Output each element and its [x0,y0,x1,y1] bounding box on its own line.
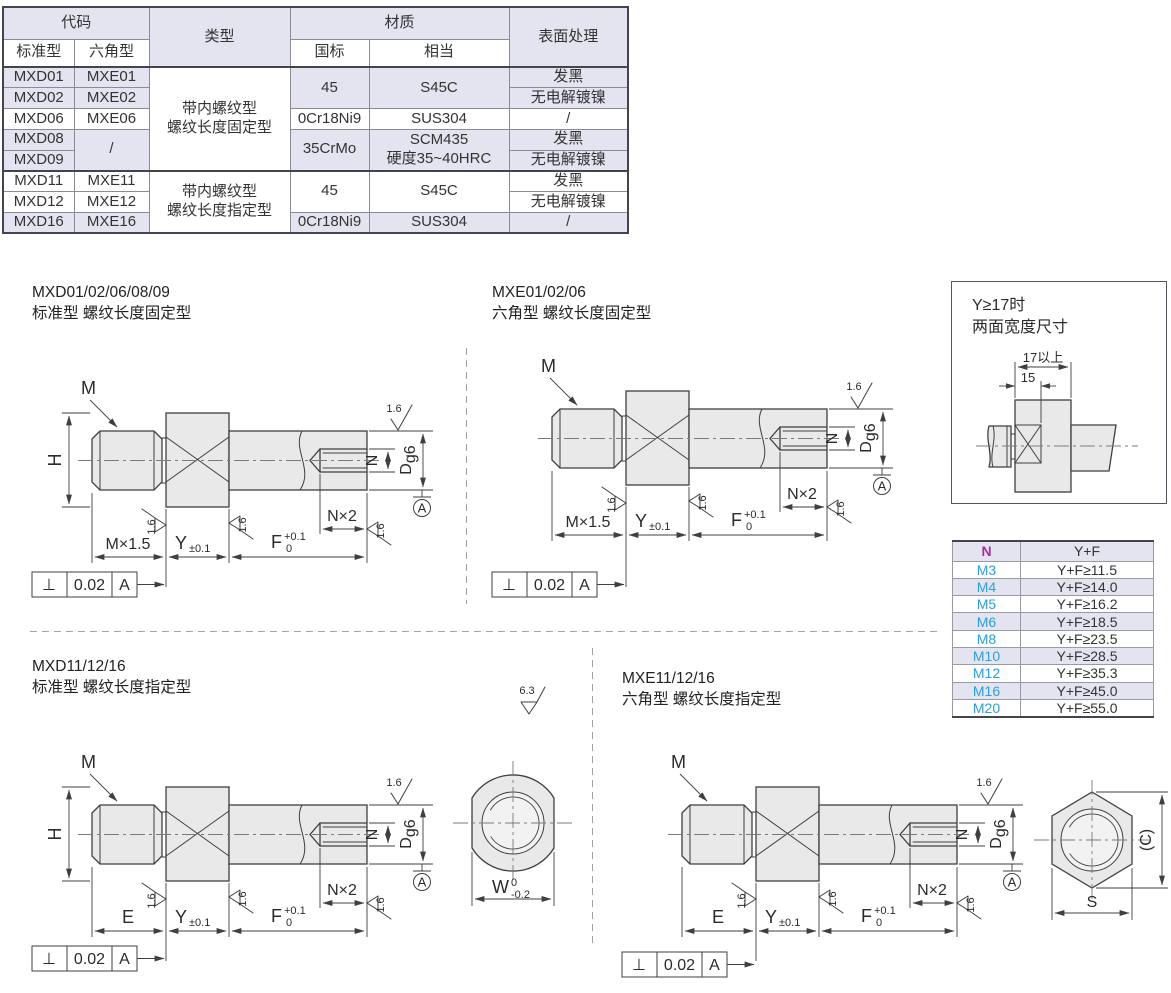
spec-cell: MXE01 [74,67,149,88]
tolerance-frame: ⊥ 0.02 A [32,946,164,971]
svg-text:1.6: 1.6 [846,381,861,393]
shaft-side-view [668,787,972,881]
spec-cell: MXD06 [3,109,74,130]
dim-15: 15 [1021,370,1035,385]
ntable-cell: Y+F≥18.5 [1021,613,1154,630]
header-surface: 表面处理 [509,7,628,67]
dim-over17: 17以上 [1023,350,1063,365]
svg-text:1.6: 1.6 [375,523,387,538]
svg-text:0.02: 0.02 [534,577,565,594]
f-label: F [271,532,282,552]
svg-text:N×2: N×2 [327,882,357,899]
svg-text:1.6: 1.6 [386,777,401,789]
drawing-mxd-specified: MXD11/12/16标准型 螺纹长度指定型 [20,652,470,992]
svg-text:1.6: 1.6 [237,517,249,532]
svg-text:A: A [709,957,720,974]
svg-text:A: A [1008,875,1017,890]
svg-text:⊥: ⊥ [42,951,56,968]
c-label: (C) [1138,829,1155,851]
svg-text:M: M [541,356,556,376]
svg-text:M×1.5: M×1.5 [566,514,611,531]
svg-text:N: N [364,829,381,841]
tol-datum: A [119,577,130,594]
header-material: 材质 [290,7,509,39]
spec-cell: S45C [369,67,509,109]
svg-text:Y: Y [765,907,777,927]
spec-cell-type: 带内螺纹型 螺纹长度指定型 [149,171,290,233]
ntable-cell: Y+F≥16.2 [1021,596,1154,613]
svg-text:+0.1: +0.1 [744,509,766,521]
ntable-header-n: N [953,541,1021,561]
f-sub: 0 [286,543,292,555]
datum-label: A [418,501,427,516]
svg-text:A: A [579,577,590,594]
spec-cell: MXD11 [3,171,74,192]
tap-size-label: N [364,455,381,467]
svg-text:F: F [271,906,282,926]
shaft-side-view [78,787,382,881]
svg-text:1.6: 1.6 [146,893,158,908]
svg-text:+0.1: +0.1 [874,905,896,917]
spec-cell: / [509,109,628,130]
svg-text:⊥: ⊥ [632,957,646,974]
spec-cell: MXD16 [3,212,74,233]
svg-text:M: M [671,752,686,772]
svg-text:Y: Y [175,907,187,927]
ntable-cell: Y+F≥14.0 [1021,578,1154,595]
svg-text:Dg6: Dg6 [858,423,879,452]
w-sup: 0 [511,877,517,889]
svg-text:N: N [824,433,841,445]
svg-text:E: E [712,907,724,927]
svg-text:1.6: 1.6 [965,897,977,912]
svg-text:F: F [731,510,742,530]
svg-text:0: 0 [876,917,882,929]
svg-text:±0.1: ±0.1 [189,917,210,929]
drawing-mxd-fixed: MXD01/02/06/08/09标准型 螺纹长度固定型 [20,278,470,613]
spec-cell-type: 带内螺纹型 螺纹长度固定型 [149,67,290,171]
round-face [453,761,573,885]
header-standard: 标准型 [3,39,74,67]
svg-text:0: 0 [286,917,292,929]
spec-cell: MXE12 [74,192,149,213]
spec-cell: 无电解镀镍 [509,88,628,109]
svg-text:1.6: 1.6 [375,897,387,912]
spec-cell: MXE16 [74,212,149,233]
svg-text:1.6: 1.6 [827,891,839,906]
note-line2: 两面宽度尺寸 [972,318,1068,336]
spec-cell: 35CrMo [290,129,369,171]
svg-text:Dg6: Dg6 [988,819,1009,848]
svg-text:Dg6: Dg6 [398,819,419,848]
spec-cell: SCM435 硬度35~40HRC [369,129,509,171]
svg-text:0.02: 0.02 [664,957,695,974]
spec-cell: MXD02 [3,88,74,109]
spec-cell: MXD09 [3,150,74,171]
svg-text:N×2: N×2 [787,486,817,503]
spec-cell: MXE02 [74,88,149,109]
header-equiv: 相当 [369,39,509,67]
svg-text:1.6: 1.6 [697,495,709,510]
f-sup: +0.1 [284,531,306,543]
spec-cell: SUS304 [369,109,509,130]
tolerance-frame: ⊥ 0.02 A [32,572,164,597]
spec-cell: SUS304 [369,212,509,233]
svg-text:1.6: 1.6 [736,893,748,908]
hex-face [1034,780,1150,900]
y-label: Y [175,533,187,553]
drawing-mxe-fixed: MXE01/02/06六角型 螺纹长度固定型 [480,278,930,613]
w-sub: -0.2 [511,889,530,901]
spec-cell: 45 [290,171,369,213]
s-label: S [1087,894,1098,911]
header-type: 类型 [149,7,290,67]
spec-table: 代码 类型 材质 表面处理 标准型 六角型 国标 相当 MXD01 MXE01 … [2,6,629,234]
header-code: 代码 [3,7,149,39]
ntable-cell: M3 [953,561,1021,578]
front-view-hex: (C) S [1020,740,1171,955]
finish-coarse-value: 6.3 [519,685,534,697]
ntable-cell: M8 [953,630,1021,647]
spec-cell: MXE11 [74,171,149,192]
svg-text:±0.1: ±0.1 [649,521,670,533]
perp-symbol: ⊥ [42,577,56,594]
thread-label: M [81,378,96,398]
y-tol: ±0.1 [189,543,210,555]
catalog-page: 代码 类型 材质 表面处理 标准型 六角型 国标 相当 MXD01 MXE01 … [0,0,1171,993]
spec-cell: 发黑 [509,67,628,88]
spec-cell: MXE06 [74,109,149,130]
spec-cell: / [509,212,628,233]
spec-cell: MXD01 [3,67,74,88]
svg-text:A: A [418,875,427,890]
header-gb: 国标 [290,39,369,67]
svg-text:0: 0 [746,521,752,533]
spec-cell: 45 [290,67,369,109]
spec-cell: MXD08 [3,129,74,150]
divider-horizontal [30,631,940,632]
shaft-side-view [538,391,842,485]
svg-text:A: A [119,951,130,968]
svg-text:⊥: ⊥ [502,577,516,594]
svg-text:1.6: 1.6 [146,519,158,534]
svg-text:E: E [122,907,134,927]
svg-text:0.02: 0.02 [74,951,105,968]
svg-text:A: A [878,479,887,494]
width-note-box: Y≥17时 两面宽度尺寸 17以上 [951,281,1167,504]
w-label: W [492,877,509,897]
svg-text:1.6: 1.6 [976,777,991,789]
spec-cell: 0Cr18Ni9 [290,109,369,130]
note-line1: Y≥17时 [972,296,1025,314]
svg-text:N: N [954,829,971,841]
spec-cell: 发黑 [509,129,628,150]
shaft-side-view [78,413,382,507]
dimensions: M Dg6 N A N×2 [541,356,893,587]
ntable-cell: Y+F≥11.5 [1021,561,1154,578]
spec-cell: / [74,129,149,171]
spec-cell: 无电解镀镍 [509,192,628,213]
ntable-cell: M4 [953,578,1021,595]
drawing-mxe-specified: MXE11/12/16六角型 螺纹长度指定型 [610,652,1060,992]
front-view-round: 6.3 W 0 -0.2 [445,658,595,958]
ntable-cell: M5 [953,596,1021,613]
height-label: H [45,454,65,467]
ntable-cell: M6 [953,613,1021,630]
tap-depth-label: N×2 [327,508,357,525]
spec-cell: 发黑 [509,171,628,192]
svg-text:1.6: 1.6 [237,891,249,906]
svg-text:M: M [81,752,96,772]
tol-value: 0.02 [74,577,105,594]
spec-cell: 无电解镀镍 [509,150,628,171]
mini-drawing: 17以上 15 [976,350,1138,492]
header-hex: 六角型 [74,39,149,67]
first-dim-label: M×1.5 [106,536,151,553]
ntable-header-yf: Y+F [1021,541,1154,561]
spec-cell: 0Cr18Ni9 [290,212,369,233]
shaft-dia-label: Dg6 [398,445,419,474]
svg-text:N×2: N×2 [917,882,947,899]
svg-text:F: F [861,906,872,926]
spec-cell: MXD12 [3,192,74,213]
svg-text:1.6: 1.6 [835,501,847,516]
tolerance-frame: ⊥ 0.02 A [622,952,754,977]
svg-text:±0.1: ±0.1 [779,917,800,929]
tolerance-frame: ⊥ 0.02 A [492,572,624,597]
svg-text:+0.1: +0.1 [284,905,306,917]
svg-text:H: H [45,828,65,841]
svg-text:1.6: 1.6 [606,497,618,512]
ntable-cell: Y+F≥23.5 [1021,630,1154,647]
spec-cell: S45C [369,171,509,213]
finish-value: 1.6 [386,403,401,415]
svg-text:Y: Y [635,511,647,531]
